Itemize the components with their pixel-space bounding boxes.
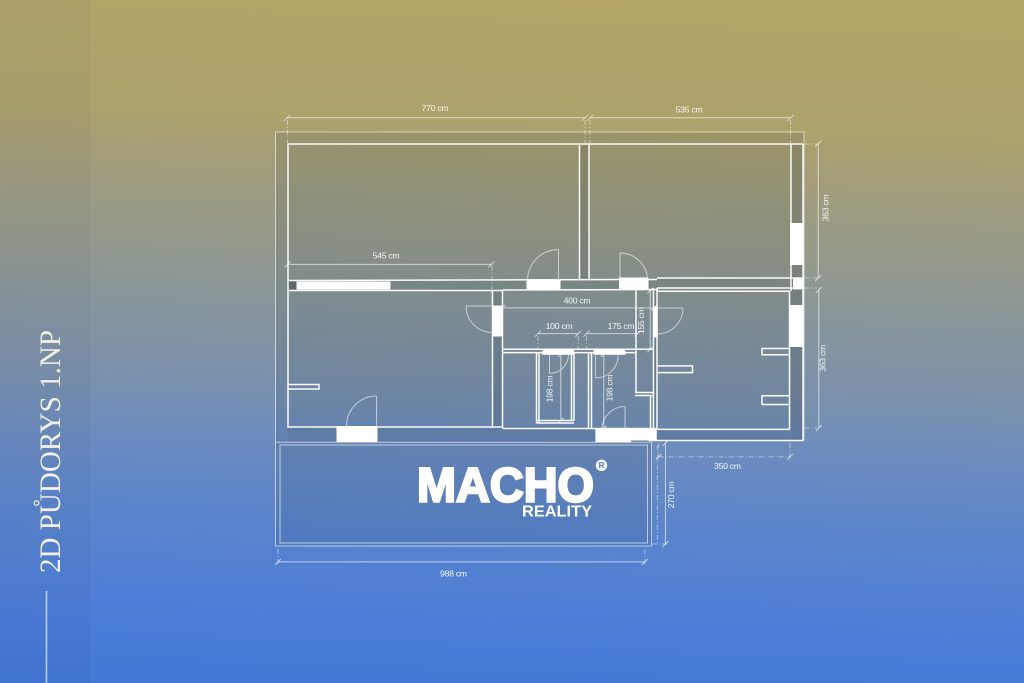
svg-text:350 cm: 350 cm: [714, 461, 741, 471]
svg-text:770 cm: 770 cm: [422, 103, 449, 113]
svg-text:2D PŮDORYS 1.NP: 2D PŮDORYS 1.NP: [33, 330, 67, 573]
svg-text:400 cm: 400 cm: [564, 296, 591, 306]
svg-text:100 cm: 100 cm: [546, 321, 573, 331]
svg-text:REALITY: REALITY: [522, 504, 592, 521]
svg-text:270 cm: 270 cm: [666, 481, 676, 508]
svg-text:545 cm: 545 cm: [373, 251, 400, 261]
svg-text:198 cm: 198 cm: [605, 375, 615, 402]
svg-text:175 cm: 175 cm: [608, 321, 635, 331]
svg-text:198 cm: 198 cm: [545, 376, 555, 403]
svg-text:363 cm: 363 cm: [818, 345, 828, 372]
svg-text:988 cm: 988 cm: [440, 569, 467, 579]
svg-text:535 cm: 535 cm: [676, 105, 703, 115]
svg-text:363 cm: 363 cm: [821, 195, 831, 222]
svg-text:155 cm: 155 cm: [636, 307, 646, 334]
svg-text:R: R: [599, 461, 605, 470]
